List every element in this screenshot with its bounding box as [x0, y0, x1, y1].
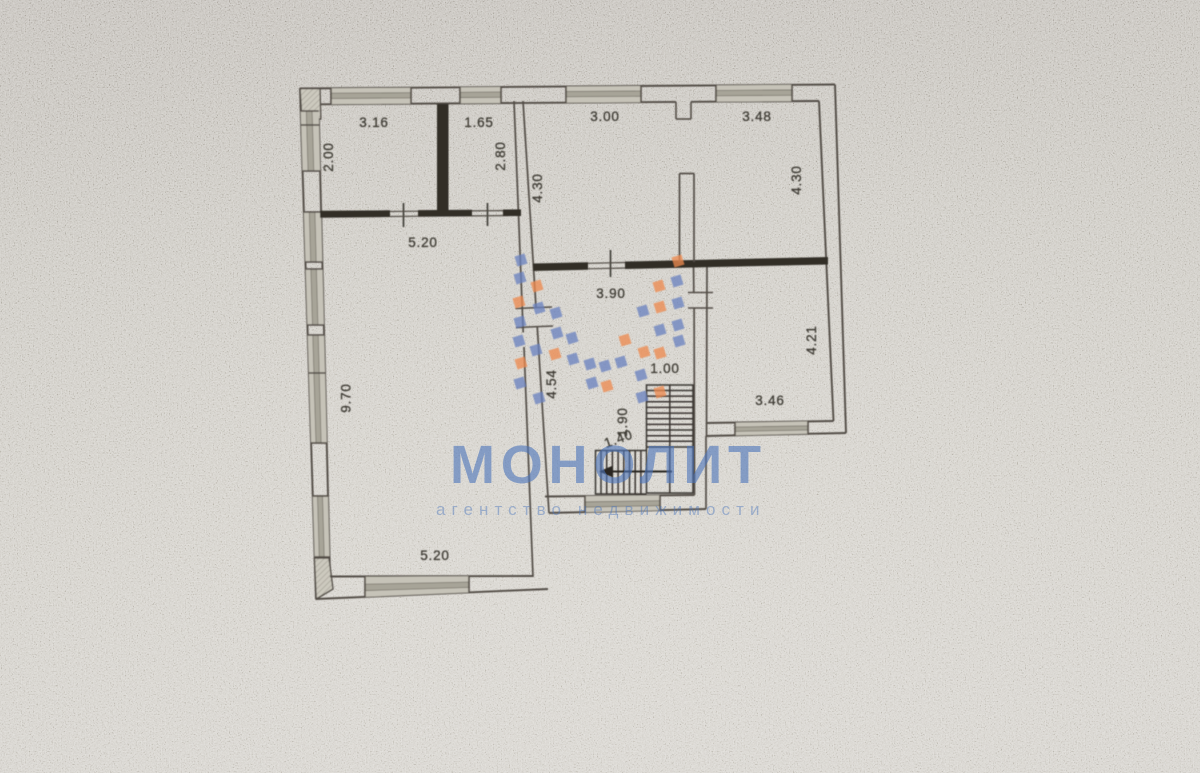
svg-text:агентство недвижимости: агентство недвижимости [436, 500, 765, 519]
svg-text:3.48: 3.48 [742, 109, 771, 124]
svg-text:9.70: 9.70 [339, 383, 354, 412]
svg-text:2.80: 2.80 [493, 141, 508, 170]
svg-text:4.54: 4.54 [544, 369, 559, 398]
svg-text:1.00: 1.00 [650, 361, 679, 376]
svg-text:5.20: 5.20 [408, 235, 437, 250]
svg-text:3.00: 3.00 [590, 109, 619, 124]
svg-text:1.65: 1.65 [464, 115, 493, 130]
svg-text:4.30: 4.30 [789, 165, 804, 194]
svg-text:5.20: 5.20 [420, 548, 449, 563]
svg-text:2.00: 2.00 [321, 142, 336, 171]
svg-text:3.90: 3.90 [596, 286, 625, 301]
svg-text:4.30: 4.30 [530, 173, 545, 202]
svg-text:3.16: 3.16 [359, 115, 388, 130]
svg-text:3.46: 3.46 [755, 393, 784, 408]
svg-text:4.21: 4.21 [804, 325, 819, 354]
